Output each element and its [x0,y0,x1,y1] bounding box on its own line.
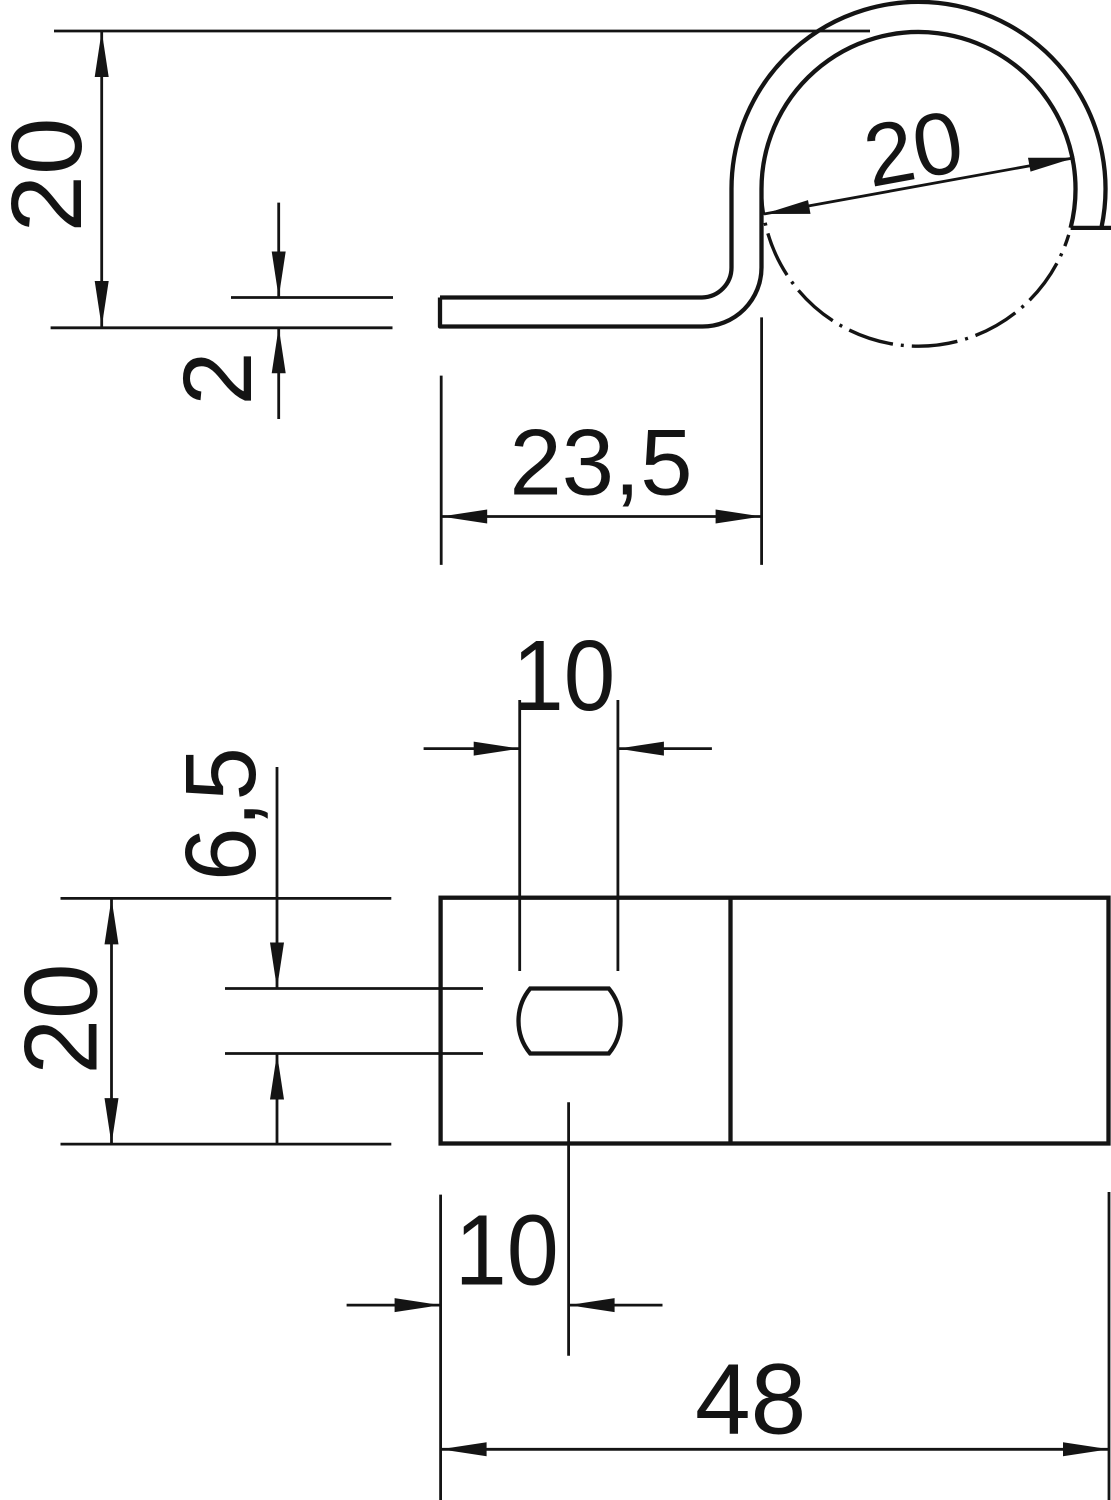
svg-text:20: 20 [4,964,120,1075]
svg-text:20: 20 [0,118,103,233]
svg-text:20: 20 [856,91,970,206]
svg-text:6,5: 6,5 [165,747,277,881]
svg-text:23,5: 23,5 [510,410,693,515]
svg-text:48: 48 [695,1344,806,1456]
svg-text:10: 10 [455,1194,559,1306]
svg-text:2: 2 [163,352,272,406]
svg-text:10: 10 [512,620,615,732]
